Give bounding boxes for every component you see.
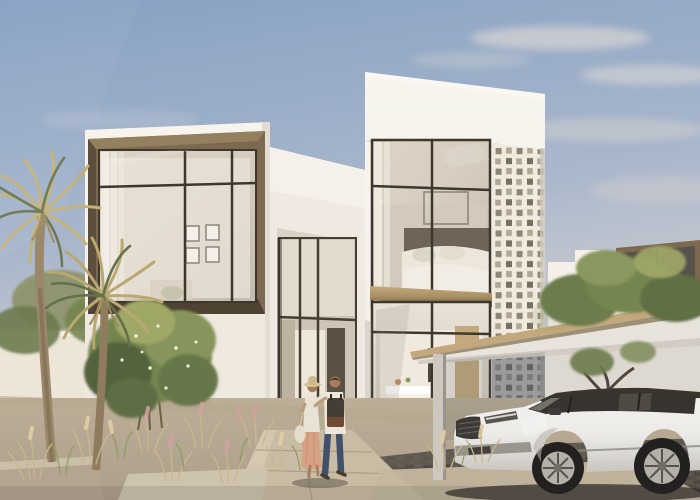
bedroom-window — [372, 140, 490, 308]
architectural-rendering — [0, 0, 700, 500]
woman-bag — [295, 425, 306, 443]
bronze-window-box — [88, 131, 265, 314]
car-mirror — [549, 408, 561, 415]
villa-scene — [0, 0, 700, 500]
bedroom-curtain — [374, 142, 390, 306]
car-rear-wheel — [634, 438, 690, 494]
